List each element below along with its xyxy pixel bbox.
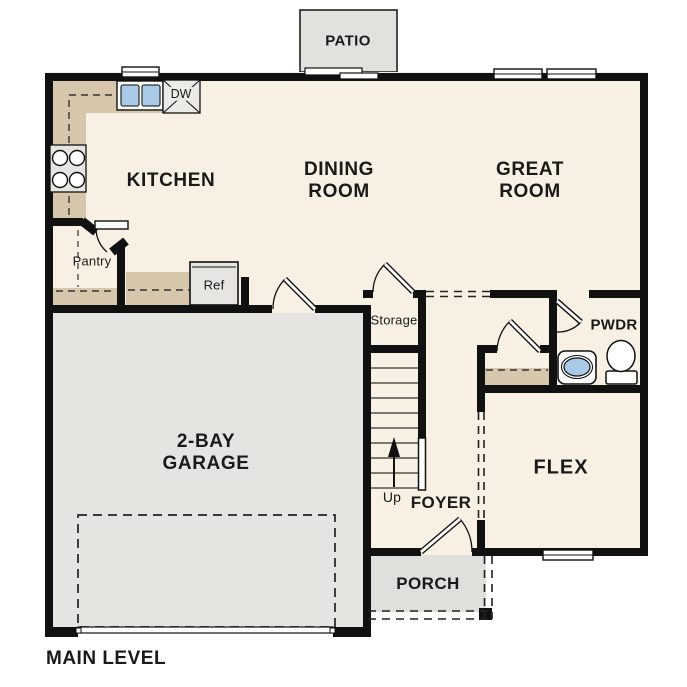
floor-plan: PATIO KITCHEN DINING ROOM GREAT ROOM 2-B… xyxy=(0,0,687,687)
great-room-window-left xyxy=(494,69,542,79)
flex-window xyxy=(543,550,593,560)
bathroom-sink-icon xyxy=(558,351,596,384)
kitchen-sink-icon xyxy=(117,81,163,110)
garage-overhead-door xyxy=(76,627,335,633)
coat-closet-shelf xyxy=(485,368,549,385)
stair-railing xyxy=(419,438,426,490)
great-room-window-right xyxy=(547,69,596,79)
patio-area xyxy=(300,10,397,72)
refrigerator-icon xyxy=(190,262,238,305)
porch-slab xyxy=(368,555,486,612)
toilet-icon xyxy=(606,341,637,385)
garage-floor xyxy=(53,313,363,629)
kitchen-window xyxy=(122,67,159,77)
dishwasher-icon xyxy=(163,80,200,113)
floor-plan-graphics xyxy=(0,0,687,687)
stove-icon xyxy=(50,145,86,192)
